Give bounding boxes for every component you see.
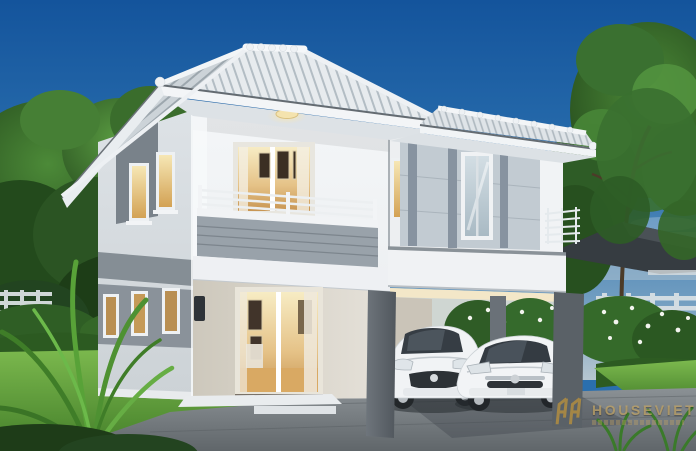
wall-sconce-left — [194, 296, 205, 321]
architectural-render-photo: HOUSEVIET — [0, 0, 696, 451]
terrace-step — [254, 406, 336, 414]
watermark-brand: HOUSEVIET — [592, 403, 696, 417]
carport-column-left — [366, 290, 396, 438]
left-lower-window — [103, 288, 180, 338]
vertical-fin — [500, 153, 508, 248]
ground-floor — [178, 280, 390, 414]
interior-picture — [248, 300, 262, 330]
curtain-right — [297, 147, 309, 211]
vertical-fin — [408, 142, 417, 246]
curtain — [304, 292, 317, 392]
watermark: HOUSEVIET — [551, 391, 696, 431]
scene-canvas — [0, 0, 696, 451]
vertical-fin — [448, 147, 457, 248]
license-plate — [507, 388, 525, 395]
interior-chair — [246, 344, 263, 368]
ground-sliding-door — [235, 287, 323, 397]
watermark-tagline — [592, 420, 684, 425]
wing-window — [461, 152, 493, 240]
houseviet-logo-icon — [551, 391, 589, 431]
wing-corner-column — [540, 152, 563, 254]
headlight — [393, 359, 413, 370]
